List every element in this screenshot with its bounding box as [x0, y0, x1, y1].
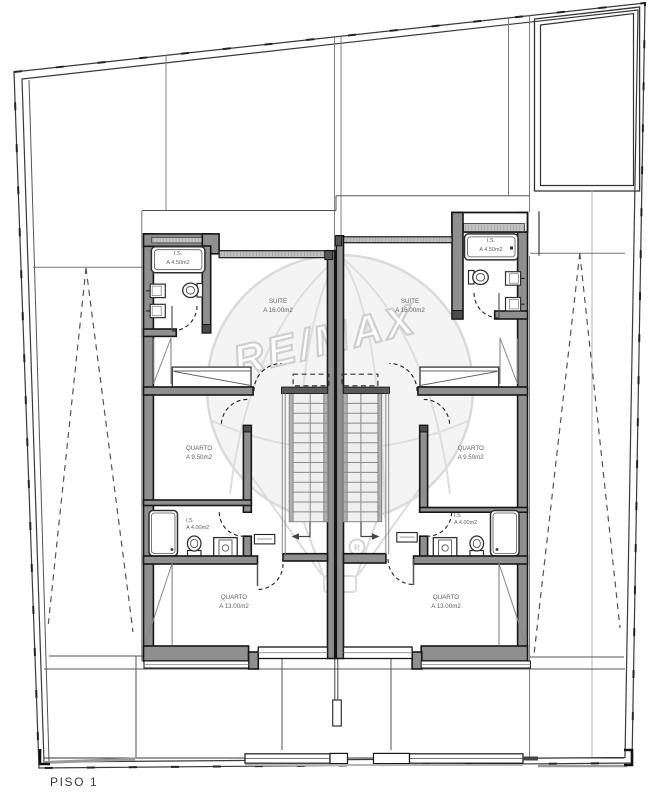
svg-text:I.S: I.S [454, 513, 461, 519]
svg-text:SUITE: SUITE [401, 298, 419, 305]
svg-text:A 4.50m2: A 4.50m2 [166, 260, 189, 266]
svg-text:A 16.00m2: A 16.00m2 [395, 307, 425, 314]
svg-text:A 13.00m2: A 13.00m2 [431, 603, 461, 610]
svg-text:QUARTO: QUARTO [186, 445, 212, 452]
svg-text:QUARTO: QUARTO [458, 445, 484, 452]
svg-text:SUITE: SUITE [269, 298, 287, 305]
svg-text:I.S.: I.S. [174, 251, 183, 257]
svg-text:I.S.: I.S. [487, 238, 496, 244]
svg-text:PISO 1: PISO 1 [50, 775, 98, 789]
svg-text:I.S: I.S [186, 518, 193, 524]
svg-text:QUARTO: QUARTO [221, 594, 247, 601]
svg-text:A 9.50m2: A 9.50m2 [186, 454, 213, 461]
svg-text:A 16.00m2: A 16.00m2 [263, 307, 293, 314]
svg-text:A 4.00m2: A 4.00m2 [454, 520, 477, 526]
svg-text:A 4.00m2: A 4.00m2 [186, 525, 209, 531]
svg-text:A 13.00m2: A 13.00m2 [219, 603, 249, 610]
svg-text:QUARTO: QUARTO [433, 594, 459, 601]
svg-text:R: R [354, 544, 360, 553]
svg-text:A 4.50m2: A 4.50m2 [479, 247, 502, 253]
svg-text:A 9.50m2: A 9.50m2 [458, 454, 485, 461]
